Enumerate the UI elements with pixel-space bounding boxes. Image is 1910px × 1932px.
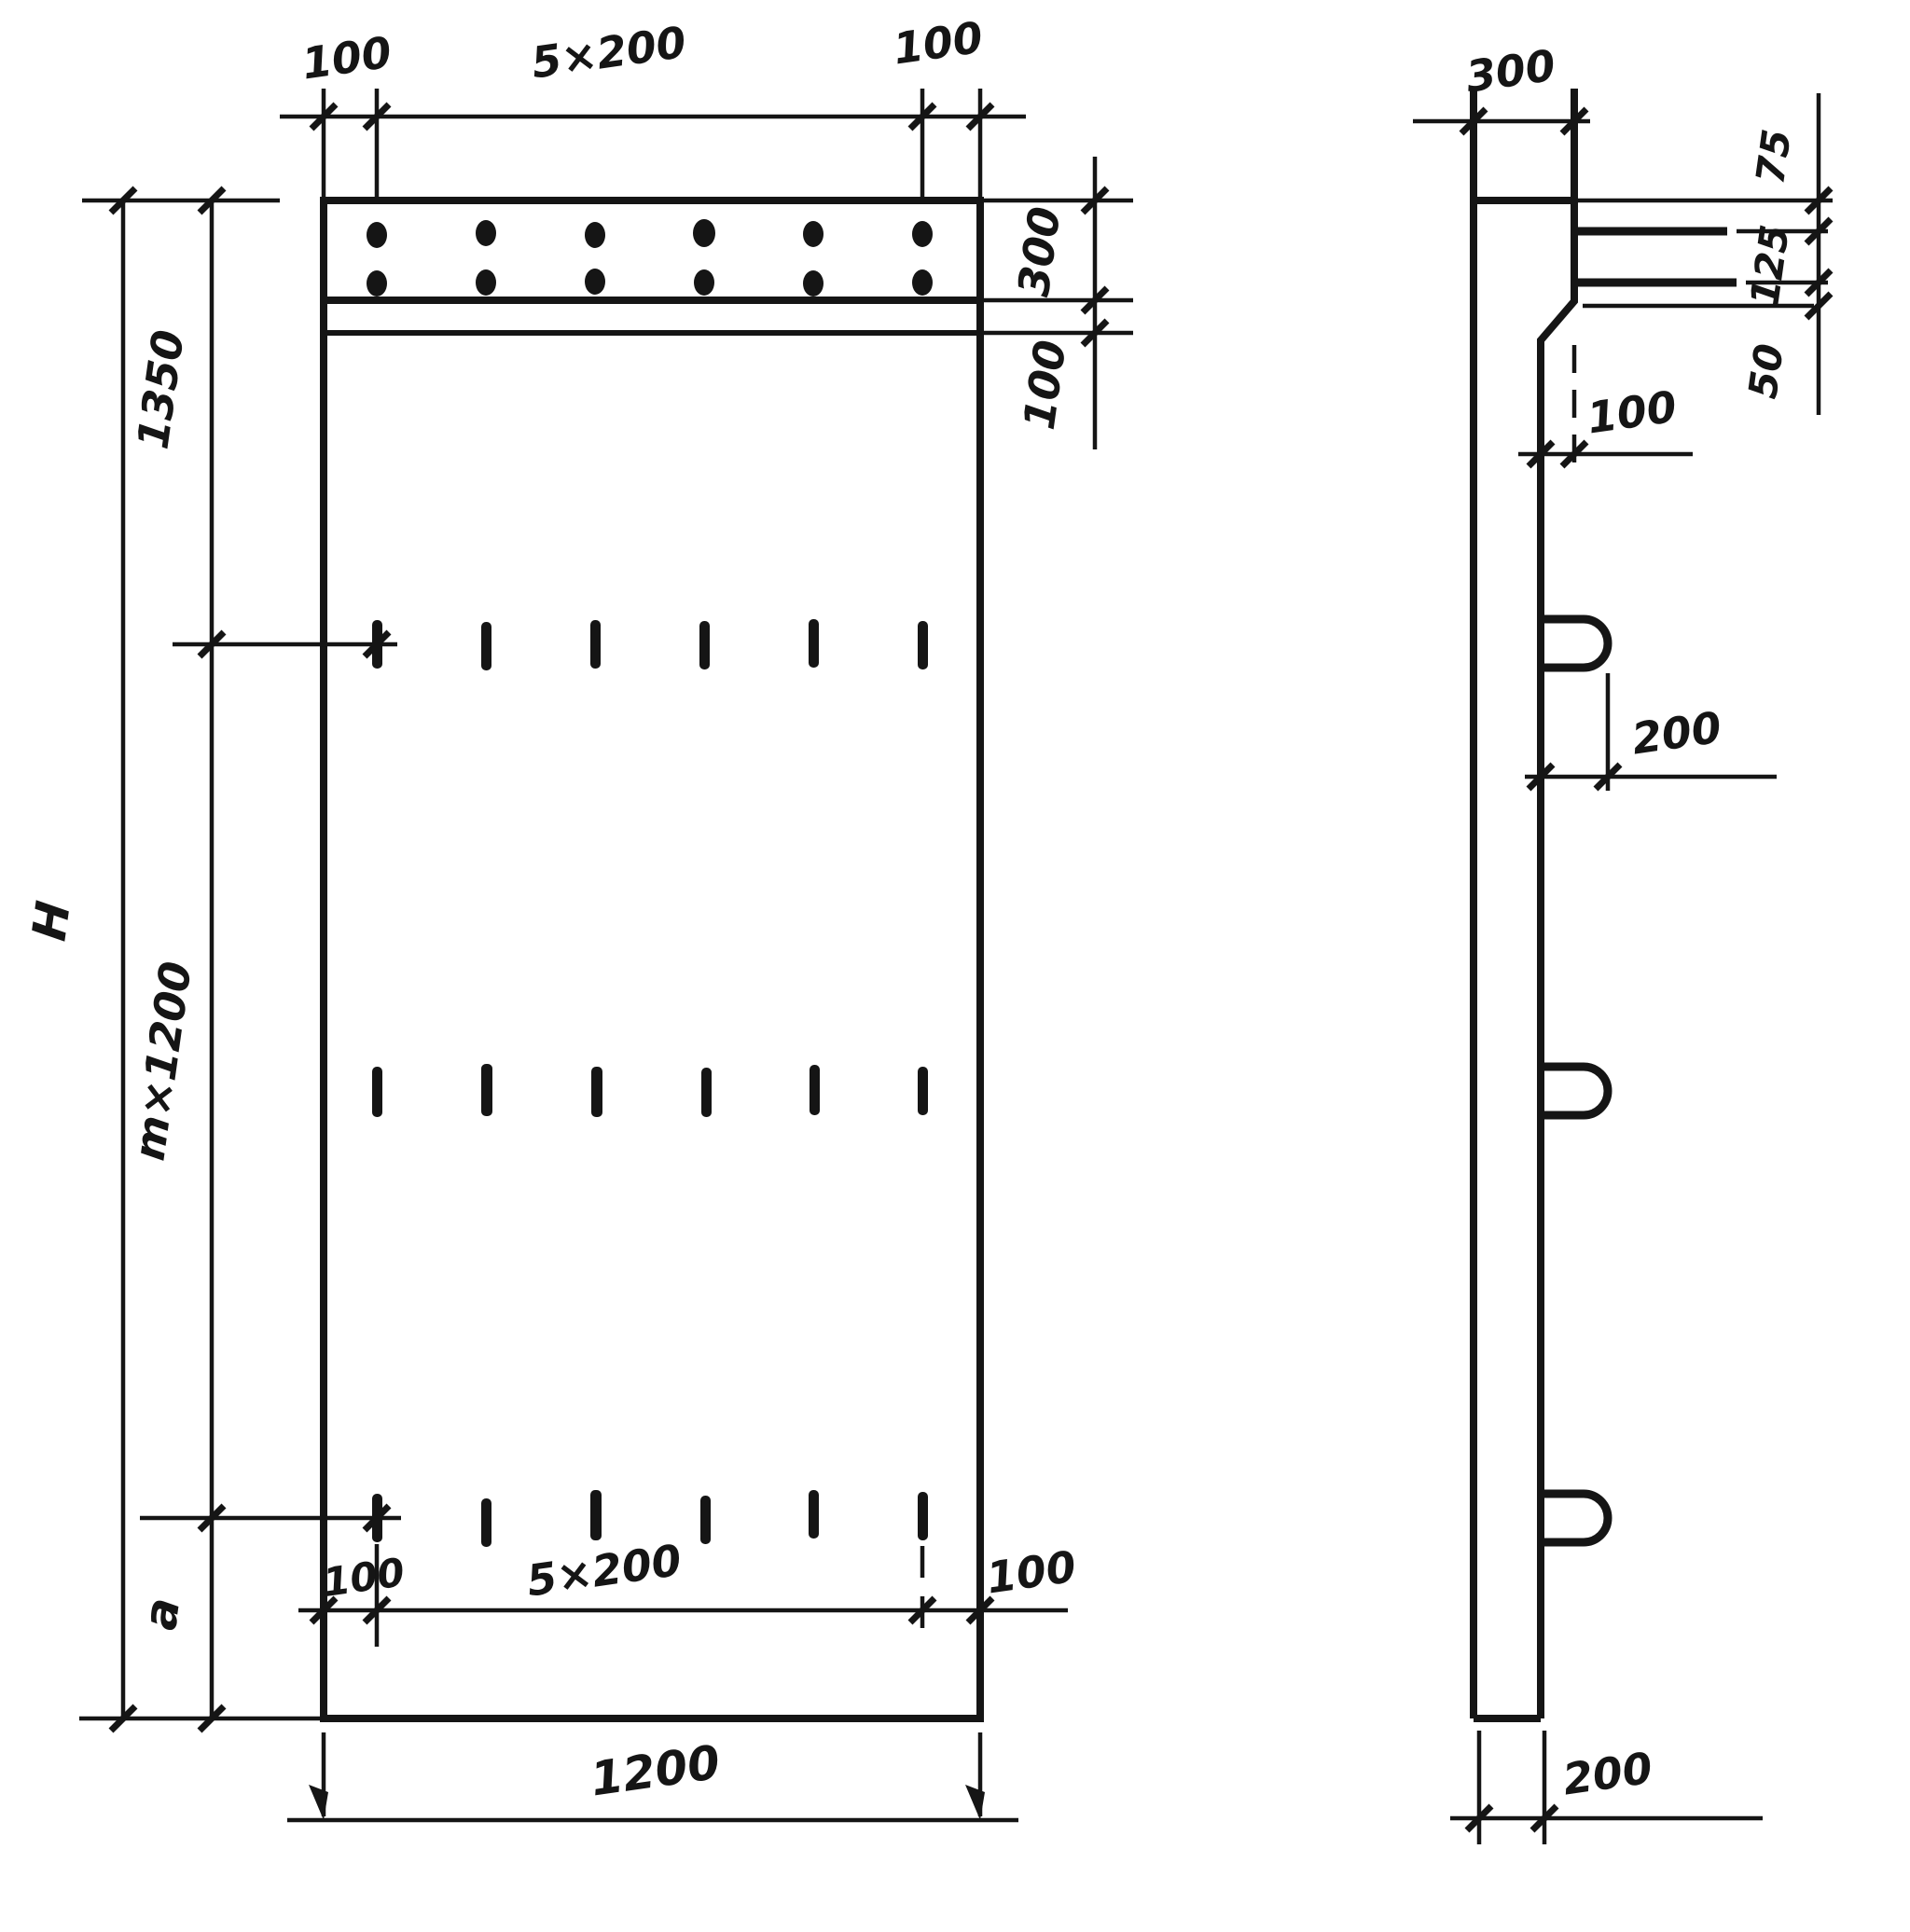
slot <box>590 620 601 669</box>
dim-1200: 1200 <box>588 1735 724 1807</box>
front-view <box>324 200 980 1718</box>
dim-bottom-5x200: 5×200 <box>524 1535 685 1607</box>
side-bottom-dimension: 200 <box>1450 1731 1763 1844</box>
dim-bottom-right-100: 100 <box>983 1541 1079 1604</box>
slot <box>809 619 819 668</box>
front-top-dimensions: 100 5×200 100 <box>280 12 1026 200</box>
slot <box>481 1064 492 1116</box>
anchor-dot <box>912 221 933 247</box>
anchor-dot <box>912 269 933 296</box>
anchor-dot <box>476 269 496 296</box>
slot <box>699 621 710 669</box>
slot <box>590 1490 602 1540</box>
dim-loop-200: 200 <box>1628 702 1724 765</box>
dim-mx1200: m×1200 <box>123 959 201 1164</box>
side-right-dimensions: 75 125 50 <box>1576 93 1833 415</box>
dim-side-300: 300 <box>1462 40 1558 103</box>
dim-1350: 1350 <box>128 327 194 452</box>
panel-drawing: 100 5×200 100 300 100 1350 H m×1200 a <box>0 0 1910 1932</box>
anchor-dot <box>693 219 715 247</box>
anchor-dot <box>803 221 824 247</box>
slot <box>591 1067 602 1117</box>
anchor-dot <box>367 270 387 297</box>
dim-top-right-100: 100 <box>890 12 986 75</box>
front-panel-outline <box>324 200 980 1718</box>
front-right-dimensions: 300 100 <box>980 157 1133 449</box>
dim-strip-100: 100 <box>1014 337 1076 433</box>
slot <box>372 1067 382 1117</box>
dim-side-50: 50 <box>1739 341 1792 402</box>
dim-side-bottom-200: 200 <box>1559 1743 1655 1805</box>
lifting-loop <box>1541 1494 1608 1542</box>
dim-band-300: 300 <box>1008 203 1071 299</box>
anchor-dots <box>367 219 933 297</box>
dim-top-5x200: 5×200 <box>529 17 689 89</box>
slot <box>918 1492 928 1540</box>
anchor-dot <box>803 270 824 297</box>
side-loop-dimension: 200 <box>1525 673 1777 791</box>
slot <box>810 1065 820 1115</box>
front-bottom-inner-dimensions: 100 5×200 100 <box>298 1535 1079 1647</box>
front-overall-width-dimension: 1200 <box>287 1732 1018 1820</box>
anchor-dot <box>367 222 387 248</box>
slot-row-1 <box>372 619 928 670</box>
front-left-dimensions: 1350 H m×1200 a <box>22 188 401 1731</box>
lifting-loop <box>1541 1067 1608 1115</box>
dim-top-left-100: 100 <box>298 27 394 90</box>
dowel-bars <box>1576 231 1737 283</box>
side-front-face <box>1541 89 1574 1718</box>
dim-H: H <box>22 898 81 945</box>
dim-a: a <box>132 1594 190 1633</box>
side-step-dimension: 100 <box>1518 345 1693 474</box>
slot <box>918 621 928 669</box>
anchor-dot <box>476 220 496 246</box>
side-top-dimension: 300 <box>1413 40 1590 133</box>
dim-side-100: 100 <box>1584 381 1680 444</box>
slot <box>701 1068 712 1117</box>
anchor-dot <box>694 269 714 296</box>
slot-row-2 <box>372 1064 928 1117</box>
slot <box>918 1067 928 1115</box>
lifting-loop <box>1541 619 1608 668</box>
drawing-sheet: 100 5×200 100 300 100 1350 H m×1200 a <box>0 0 1910 1932</box>
anchor-dot <box>585 269 605 295</box>
slot <box>481 622 491 670</box>
anchor-dot <box>585 222 605 248</box>
lifting-loops <box>1541 619 1608 1542</box>
dim-side-75: 75 <box>1747 127 1800 187</box>
side-view <box>1474 89 1737 1718</box>
dim-bottom-left-100: 100 <box>320 1549 408 1606</box>
slot <box>700 1496 711 1544</box>
dim-side-125: 125 <box>1741 222 1798 310</box>
slot <box>481 1498 491 1547</box>
slot <box>809 1490 819 1539</box>
